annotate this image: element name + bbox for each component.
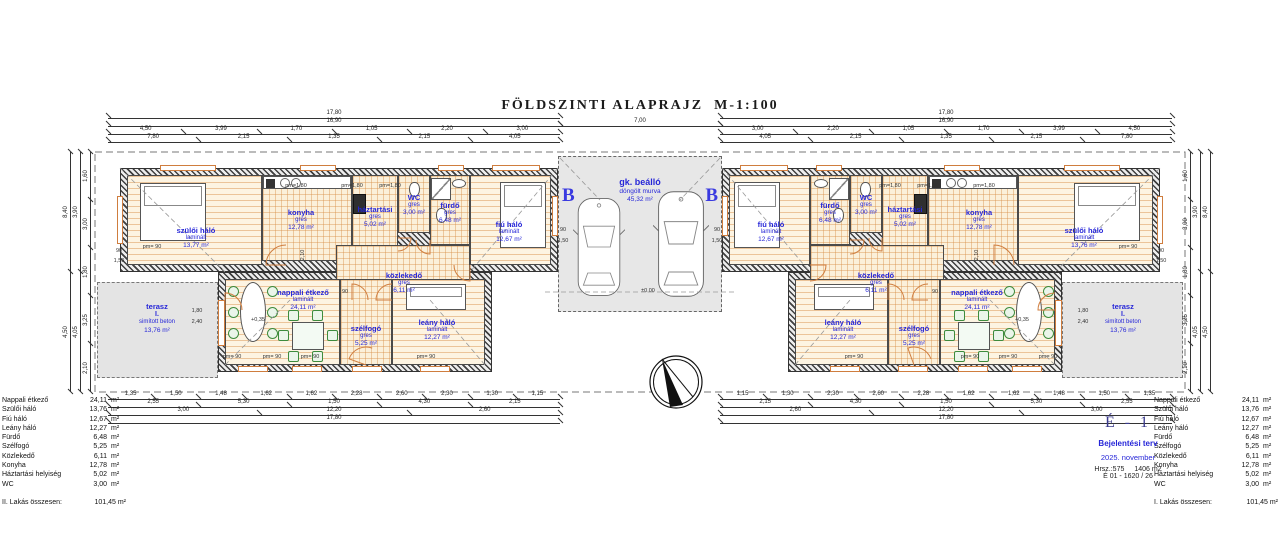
total-value: 101,45 m² [1230,498,1278,507]
total-label: I. Lakás összesen: [1154,498,1230,507]
dimension-chain: 7,802,151,352,154,05 [108,134,560,148]
dimension-annotation: pm=1,80 [973,183,995,189]
room-label: nappali étkezőlaminált24,11 m² [277,288,329,312]
area-table-row: Közlekedő6,11m² [2,452,126,461]
dimension-chain: 17,80 [108,415,560,429]
dimension-chain: 7,00 [560,118,720,132]
dimension-annotation: 2,10 [300,250,306,261]
shower-fixture [431,178,451,200]
dimension-annotation: ±0,00 [641,288,655,294]
section-marker-b-left: B [562,185,575,207]
window-opening [898,366,928,372]
dimension-annotation: pm= 90 [1039,354,1058,360]
area-table-row: Fiú háló12,67m² [2,415,126,424]
room-label: nappali étkezőlaminált24,11 m² [951,288,1003,312]
area-table-row: WC3,00m² [1154,480,1278,489]
carport-area: gk. beálló döngölt murva 45,32 m² B B [558,156,722,312]
carport-room-area: 45,32 m² [559,196,721,204]
section-marker-b-right: B [705,185,718,207]
dimension-annotation: pm= 90 [961,354,980,360]
dimension-annotation: 1,50 [1156,258,1167,264]
window-opening [1157,196,1163,244]
dining-set-square [944,310,1002,360]
floor-plan-sheet: FÖLDSZINTI ALAPRAJZ M-1:100 szülői hálól… [0,0,1280,540]
area-table-row: Nappali étkező24,11m² [2,396,126,405]
carport-name: gk. beálló [559,177,721,188]
window-opening [238,366,268,372]
sheet-number: É - 1 [1066,414,1190,432]
window-opening [420,366,450,372]
room-label: szélfogógres5,25 m² [351,324,381,348]
area-table-total-row: II. Lakás összesen: 101,45 m² [2,498,126,507]
room-label: közlekedőgres6,11 m² [858,271,894,295]
dimension-annotation: 1,80 [192,308,203,314]
window-opening [438,165,464,171]
room-label: leány hálólaminált12,27 m² [419,318,456,342]
dimension-annotation: 90 [116,248,122,254]
room-label: szélfogógres5,25 m² [899,324,929,348]
parcel-area: 1406 m2 [1134,466,1161,473]
dimension-annotation: +0,35 [1015,317,1029,323]
room-label: szülői hálólaminált13,77 m² [177,226,216,250]
window-opening [300,165,336,171]
dimension-annotation: 2,40 [1078,319,1089,325]
window-opening [830,366,860,372]
dimension-annotation: 90 [714,227,720,233]
dimension-annotation: pm= 90 [845,354,864,360]
room-label: fiú hálólaminált12,67 m² [758,220,785,244]
window-opening [492,165,540,171]
total-value: 101,45 m² [78,498,126,507]
room-label: háztartásigres5,02 m² [887,205,922,229]
dimension-annotation: 1,50 [558,238,569,244]
window-opening [160,165,216,171]
area-table-row: WC3,00m² [2,480,126,489]
area-table-row: Nappali étkező24,11m² [1154,396,1278,405]
dimension-annotation: 90 [1158,248,1164,254]
carport-label: gk. beálló döngölt murva 45,32 m² [559,177,721,205]
window-opening [816,165,842,171]
shower-fixture [829,178,849,200]
area-table-row: Háztartási helyiség5,02m² [2,470,126,479]
dimension-annotation: pm= 90 [223,354,242,360]
parcel-number: Hrsz.:575 [1094,466,1124,473]
window-opening [740,165,788,171]
window-opening [944,165,980,171]
dimension-annotation: pm= 90 [143,244,162,250]
dimension-chain: 1,603,001,803,252,10 [1182,152,1196,392]
area-table-row: Konyha12,78m² [2,461,126,470]
window-opening [1012,366,1042,372]
window-opening [292,366,322,372]
dimension-annotation: 1,80 [1078,308,1089,314]
document-date: 2025. november [1066,453,1190,462]
dimension-annotation: 1,50 [712,238,723,244]
title-block: É - 1 Bejelentési terv 2025. november Hr… [1066,414,1190,480]
window-opening [552,196,558,236]
dimension-annotation: pm=1,80 [341,183,363,189]
dimension-annotation: 1,50 [114,258,125,264]
sink-fixture [814,179,828,188]
dimension-annotation: pm= 90 [263,354,282,360]
room-label: háztartásigres5,02 m² [357,205,392,229]
dimension-annotation: pm=1,80 [285,183,307,189]
window-opening [1064,165,1120,171]
dining-set-round [1004,280,1052,342]
dining-set-square [278,310,336,360]
total-label: II. Lakás összesen: [2,498,78,507]
dimension-annotation: 2,10 [974,250,980,261]
document-type: Bejelentési terv [1066,439,1190,448]
dimension-chain: 4,052,151,352,157,80 [720,134,1172,148]
room-label: konyhagres12,78 m² [288,208,314,232]
dimension-annotation: pm=1,80 [379,183,401,189]
dimension-annotation: pm= 90 [417,354,436,360]
room-label: WCgres3,00 m² [855,193,877,217]
dimension-annotation: pm= 90 [999,354,1018,360]
dimension-annotation: 90 [560,227,566,233]
window-opening [117,196,123,244]
room-label: konyhagres12,78 m² [966,208,992,232]
room-label: leány hálólaminált12,27 m² [825,318,862,342]
room-label: fürdőgres6,48 m² [819,201,841,225]
window-opening [1055,300,1062,346]
kitchen-counter [263,176,351,189]
sink-fixture [452,179,466,188]
dining-set-round [228,280,276,342]
dimension-annotation: 90 [932,289,938,295]
carport-finish: döngölt murva [559,188,721,196]
room-label: WCgres3,00 m² [403,193,425,217]
area-table-row: Leány háló12,27m² [2,424,126,433]
dimension-annotation: pm=1,80 [879,183,901,189]
dimension-annotation: pm= 90 [1119,244,1138,250]
dimension-annotation: 2,40 [192,319,203,325]
dimension-annotation: pm=1,80 [917,183,939,189]
car-top-view [573,191,625,303]
area-table-row: Fürdő6,48m² [2,433,126,442]
room-label: szülői hálólaminált13,76 m² [1065,226,1104,250]
area-table-row: Szülői háló13,76m² [2,405,126,414]
room-label: teraszI.simított beton13,76 m² [1105,302,1141,334]
dimension-annotation: pm= 90 [301,354,320,360]
window-opening [722,196,728,236]
area-table-row: Szélfogó5,25m² [2,442,126,451]
north-arrow-compass [647,350,705,414]
dimension-annotation: 90 [342,289,348,295]
window-opening [352,366,382,372]
area-table-total-row: I. Lakás összesen: 101,45 m² [1154,498,1278,507]
dimension-annotation: +0,35 [251,317,265,323]
room-label: közlekedőgres6,11 m² [386,271,422,295]
window-opening [958,366,988,372]
room-label: fürdőgres6,48 m² [439,201,461,225]
area-table-left: Nappali étkező24,11m²Szülői háló13,76m²F… [2,396,126,507]
document-reference: É 01 - 1620 / 26 [1066,473,1190,480]
window-opening [218,300,225,346]
parcel-info: Hrsz.:575 1406 m2 [1066,466,1190,473]
dimension-chain: 1,603,001,803,252,10 [82,152,96,392]
room-label: teraszI.simított beton13,76 m² [139,302,175,334]
room-label: fiú hálólaminált12,67 m² [496,220,523,244]
